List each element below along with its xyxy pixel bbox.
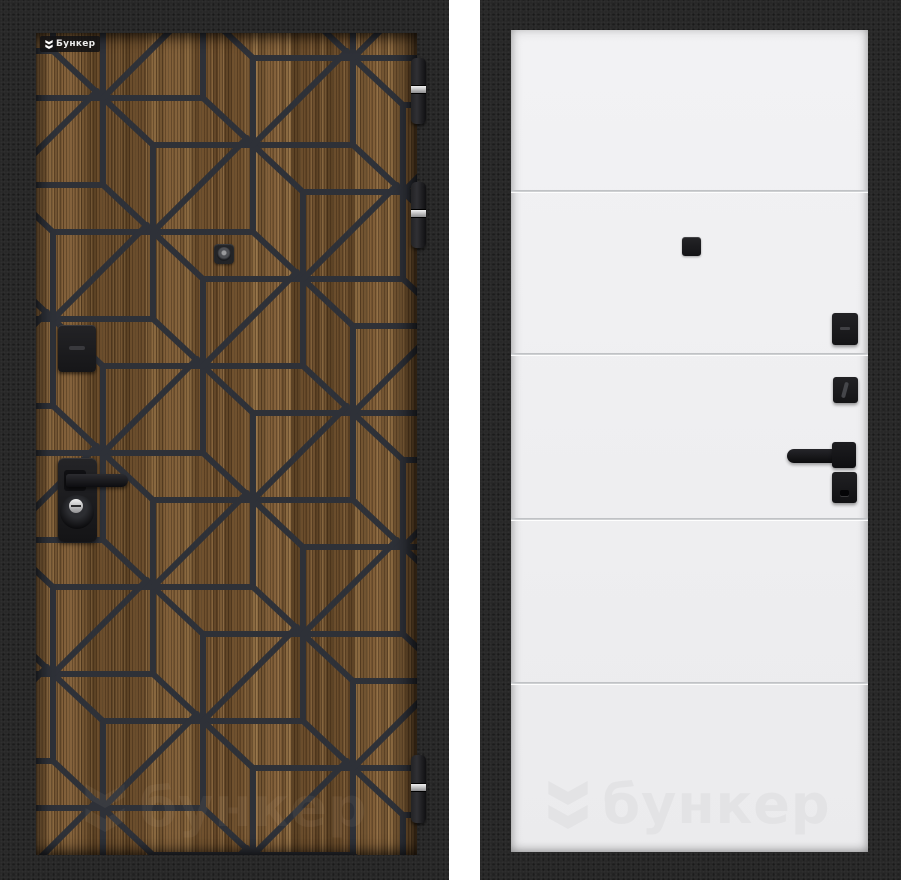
panel-groove [511, 190, 868, 192]
brand-watermark-text: бункер [602, 778, 830, 832]
brand-chevron-icon [45, 40, 53, 49]
door-exterior-view: Бункер бункер [0, 0, 449, 880]
panel-groove [511, 518, 868, 520]
door-leaf-interior: бункер [511, 30, 868, 852]
hinge [411, 755, 426, 823]
hinge [411, 182, 426, 248]
keyhole-slot [840, 327, 850, 330]
brand-chevron-icon [548, 781, 588, 829]
brand-watermark-white: бункер [511, 778, 868, 832]
cube-pattern-svg [36, 33, 417, 855]
door-product-photo: Бункер бункер [0, 0, 901, 880]
panel-groove [511, 682, 868, 684]
thumbturn-knob [841, 382, 849, 398]
cylinder-slot [71, 505, 81, 507]
brand-badge: Бункер [40, 36, 100, 52]
lock-escutcheon-icon [832, 313, 858, 345]
hinge-chrome-band [411, 784, 426, 791]
thumbturn-icon [833, 377, 858, 403]
hinge-chrome-band [411, 210, 426, 217]
door-viewer-icon [214, 244, 234, 264]
door-leaf-exterior: Бункер бункер [36, 33, 417, 855]
handle-backplate [832, 442, 856, 468]
hinge [411, 58, 426, 124]
brand-badge-label: Бункер [56, 39, 95, 49]
lock-escutcheon-icon [58, 325, 96, 372]
keyhole-slot [69, 346, 85, 350]
cylinder-escutcheon-icon [832, 472, 857, 503]
lever-handle-icon [66, 474, 128, 487]
door-interior-view: бункер [480, 0, 901, 880]
cylinder-slot [840, 490, 849, 496]
hinge-chrome-band [411, 86, 426, 93]
lock-cylinder-icon [69, 499, 83, 513]
door-viewer-icon [682, 237, 701, 256]
viewer-lens [217, 247, 231, 261]
panel-groove [511, 353, 868, 355]
